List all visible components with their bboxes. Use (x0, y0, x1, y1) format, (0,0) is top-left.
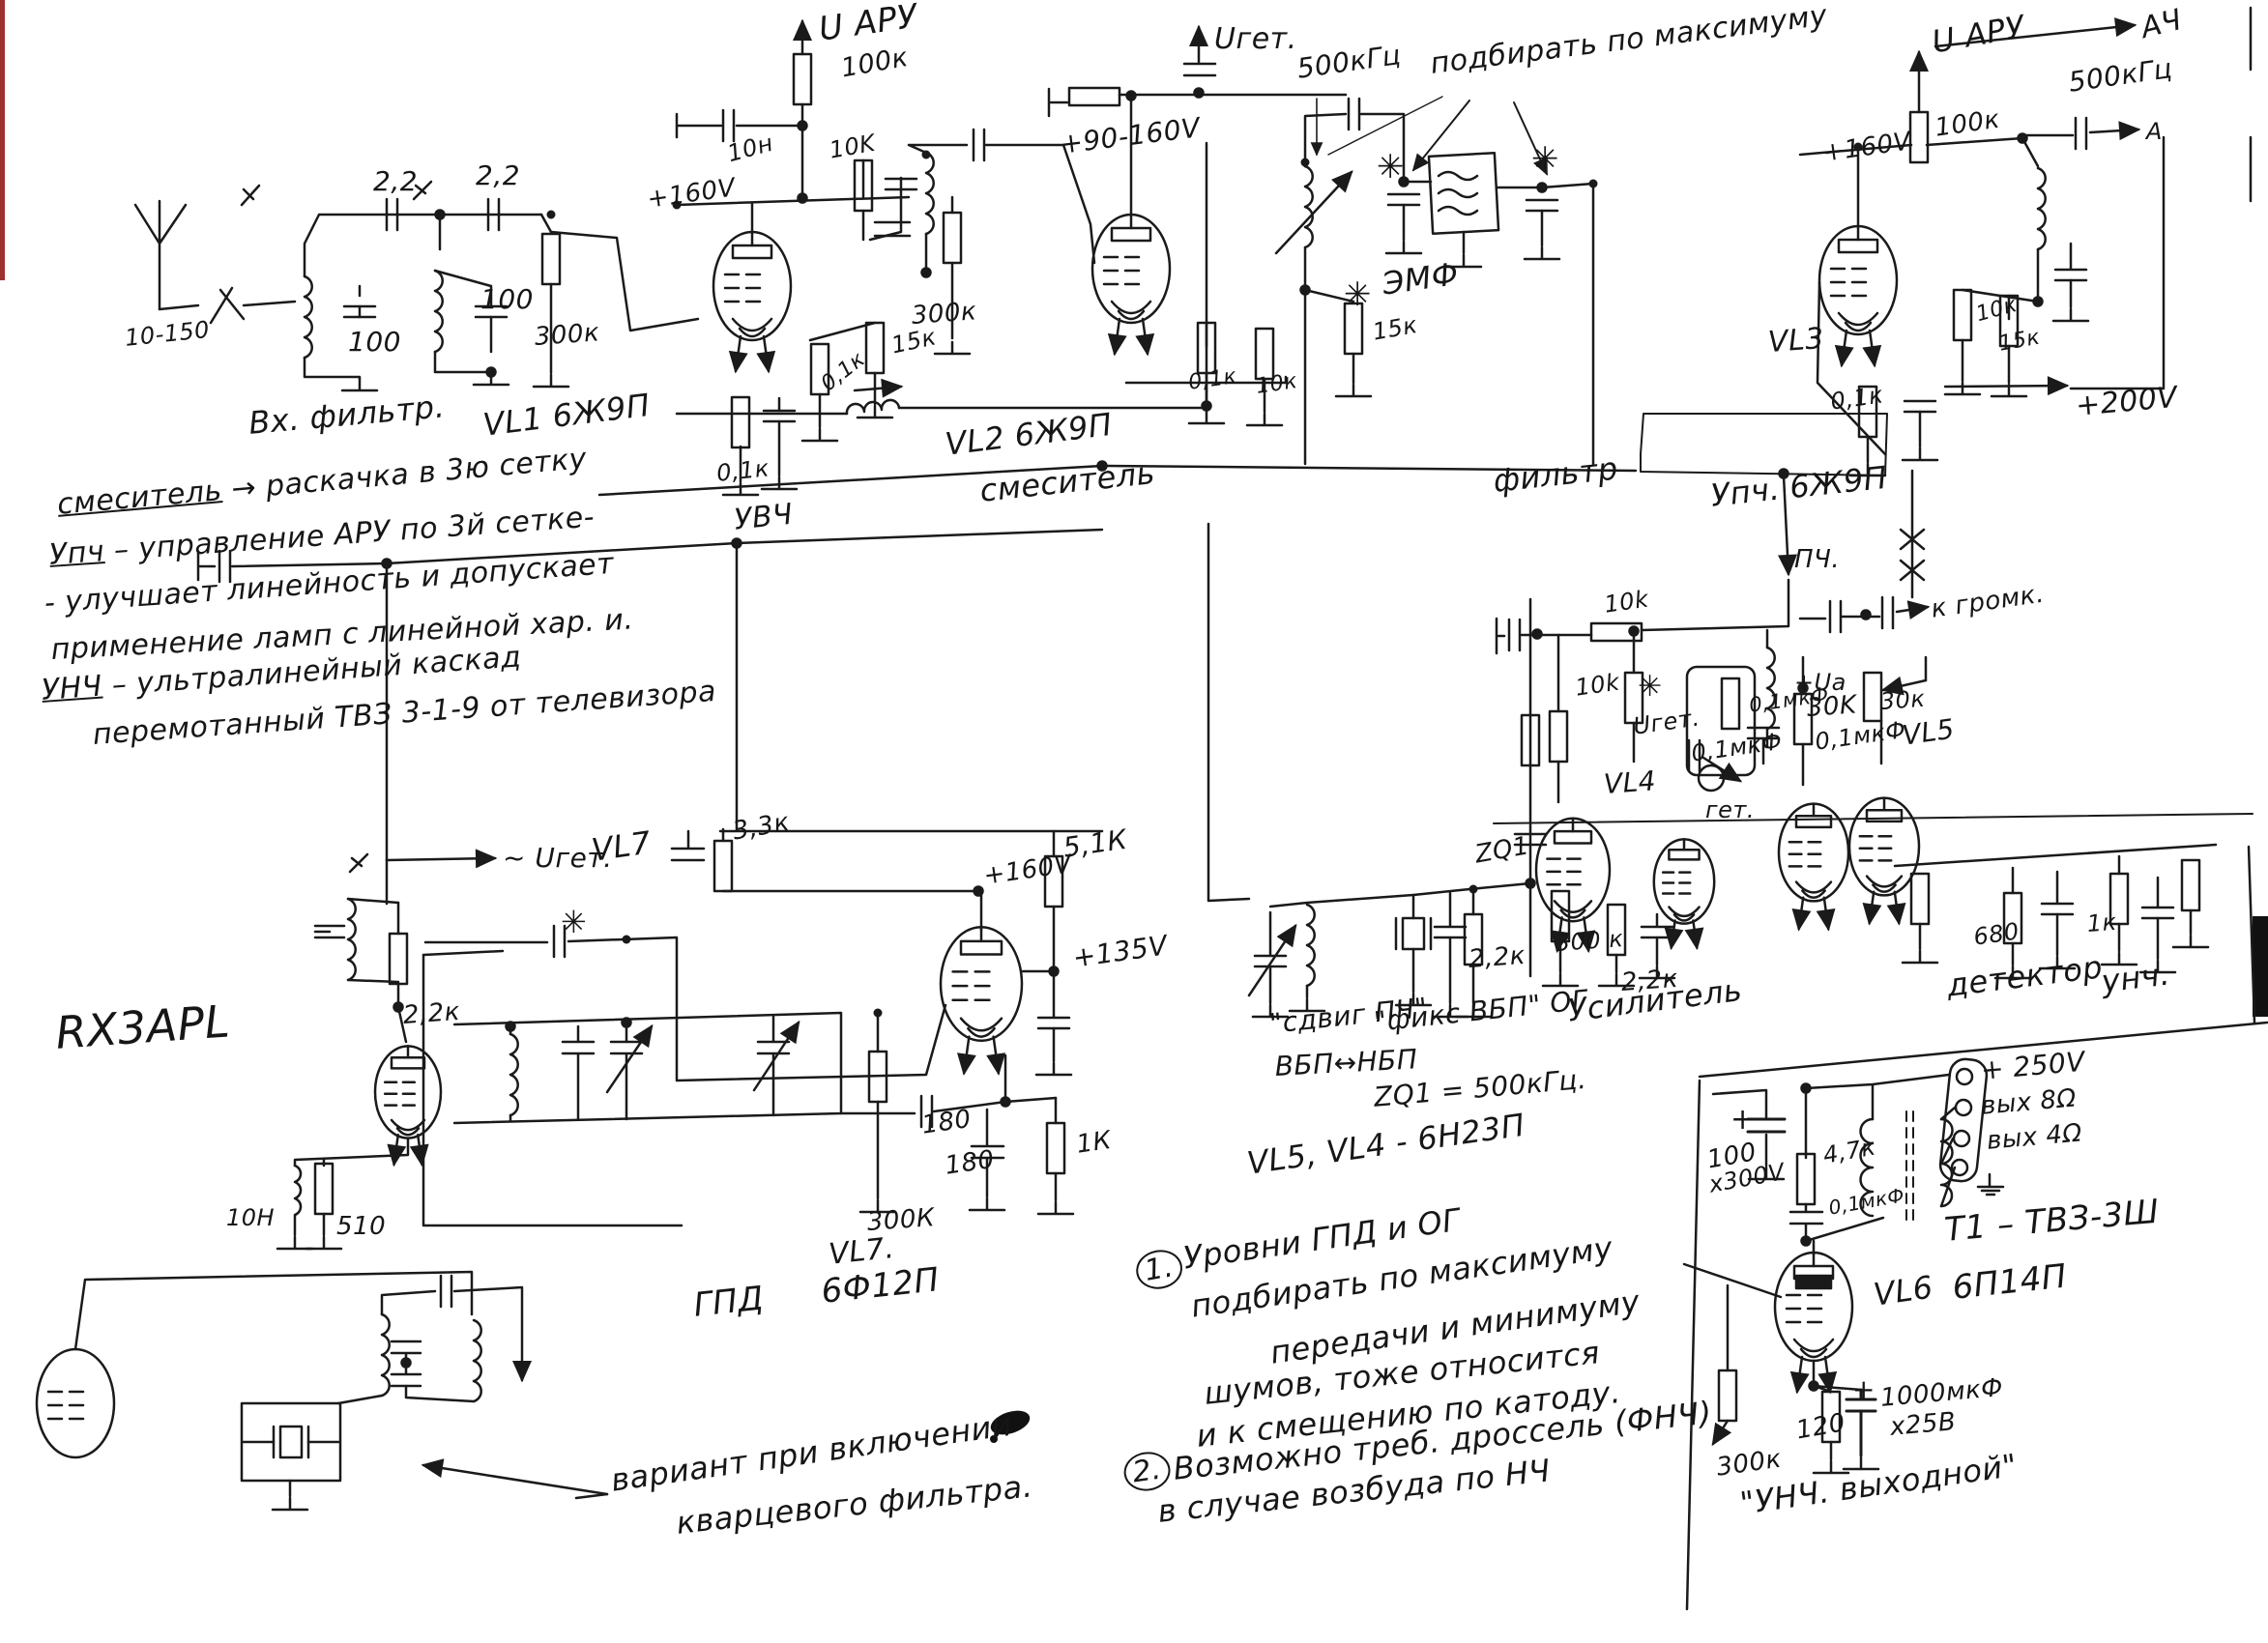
cap-180-label-2: 180 (944, 1147, 996, 1179)
audio-stage-label: унч. (2100, 958, 2171, 996)
anode-voltage-label: +Uа (1794, 671, 1846, 694)
schematic-scan-page: U АРУ100к10н10K+160V2,22,210010010-15030… (0, 0, 2268, 1643)
resistor-1k-vfo-label: 1К (1075, 1128, 1113, 1158)
resistor-30k-label-2: 30к (1879, 687, 1926, 713)
uhf-stage-label: УВЧ (733, 501, 795, 535)
resistor-300k-vfo-label: 300К (866, 1205, 936, 1235)
asterisk-emf-in: ✳ (1377, 151, 1405, 184)
vfo-stage-label: ГПД (692, 1282, 766, 1321)
asterisk-vfo-cap: ✳ (561, 907, 587, 937)
resistor-300k-amp-label: 300 к (1555, 927, 1624, 955)
asterisk-het-box: ✳ (1638, 673, 1663, 702)
resistor-10k-det-label-2: 10k (1574, 671, 1621, 700)
tube-vl4-label: VL4 (1603, 767, 1657, 798)
input-filter-stage (135, 182, 698, 390)
if-stage-vl3 (1641, 25, 2164, 632)
resistor-0-1k-vl1-cathode-label: 0,1к (715, 456, 771, 485)
resistor-680-label: 680 (1972, 919, 2021, 948)
resistor-300k-vl1-label: 300к (911, 299, 977, 329)
cap-2-2-label-1: 2,2 (373, 168, 418, 195)
tube-vl7-label-bottom: VL7. (828, 1234, 896, 1270)
cap-1000uf-label-2: х25В (1889, 1409, 1957, 1440)
resistor-15k-vl2-label: 15к (1371, 313, 1419, 344)
resistor-510-label: 510 (336, 1214, 386, 1239)
resistor-30k-label-1: 30K (1806, 692, 1857, 721)
cap-100-label-2: 100 (480, 286, 534, 313)
resistor-2-2k-og-label: 2,2к (1468, 943, 1527, 972)
cap-plus-label-2: + (1852, 1376, 1875, 1403)
tube-vl7-label-top: VL7 (590, 826, 653, 865)
resistor-300k-input-label: 300к (534, 320, 600, 350)
cap-180-label-1: 180 (920, 1107, 973, 1139)
emf-filter-label: ЭМФ (1381, 258, 1461, 300)
het-voltage-top-label: Uгет. (1214, 25, 1297, 54)
resistor-0-1k-vl3-label: 0,1к (1829, 383, 1884, 413)
resistor-1k-det-label: 1к (2086, 910, 2117, 936)
inductor-10h-label: 10Н (226, 1206, 275, 1229)
tube-vl5-label: VL5 (1901, 715, 1956, 749)
supply-200v-label: +200V (2075, 384, 2179, 421)
resistor-10k-det-label-1: 10k (1603, 588, 1650, 617)
usb-lsb-label: ВБП↔НБП (1274, 1046, 1418, 1081)
point-a-label: А (2146, 120, 2163, 143)
mixer-stage-vl2 (1049, 27, 1593, 464)
asterisk-vl2-anode: ✳ (1344, 278, 1372, 311)
tube-vl6-label: VL6 (1872, 1271, 1934, 1310)
callsign-label: RX3APL (54, 998, 231, 1054)
if-output-label: ПЧ. (1794, 547, 1840, 572)
tube-vl3-label: VL3 (1767, 325, 1825, 358)
resistor-2-2k-vfo-label: 2,2к (402, 999, 461, 1028)
het-label-small: гет. (1705, 798, 1755, 821)
resistor-10k-vl2-label: 10к (1255, 371, 1298, 398)
crystal-filter-variant (37, 1272, 607, 1510)
asterisk-emf-out: ✳ (1531, 143, 1559, 176)
cap-plus-label-1: + (1730, 1106, 1756, 1135)
cap-2-2-label-2: 2,2 (476, 162, 520, 189)
cap-100-label-1: 100 (348, 329, 401, 356)
